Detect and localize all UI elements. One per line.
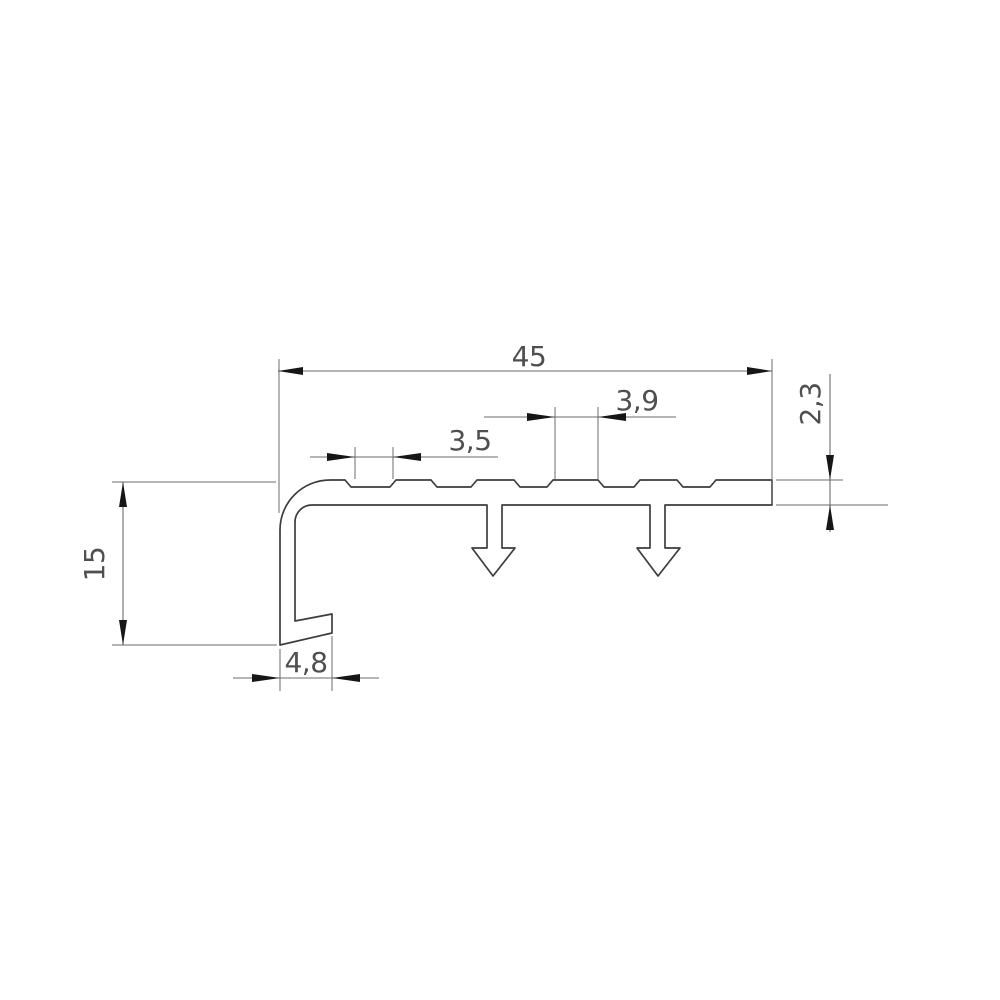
- drawing-canvas: 45 2,3 3,9 3,5: [0, 0, 1000, 1000]
- dimension-leg-height: 15: [78, 482, 277, 645]
- arrowhead-up-icon: [119, 482, 127, 507]
- dimension-label-groove-width: 3,5: [448, 424, 491, 457]
- dimension-rib-width: 3,9: [484, 384, 676, 479]
- dimension-label-rib-width: 3,9: [615, 384, 658, 417]
- arrowhead-up-icon: [826, 505, 834, 530]
- profile-outline: [280, 480, 772, 645]
- dimension-groove-width: 3,5: [310, 424, 498, 479]
- arrowhead-left-icon: [393, 453, 421, 461]
- dimension-bar-thickness: 2,3: [776, 374, 888, 532]
- arrowhead-right-icon: [252, 674, 280, 682]
- arrowhead-down-icon: [119, 620, 127, 645]
- dimension-label-bar-thickness: 2,3: [794, 382, 827, 425]
- dimension-foot-width: 4,8: [233, 636, 379, 691]
- dimension-label-foot-width: 4,8: [284, 646, 327, 679]
- dimension-label-total-width: 45: [512, 340, 547, 373]
- arrowhead-right-icon: [327, 453, 355, 461]
- arrowhead-right-icon: [747, 367, 772, 375]
- profile-technical-drawing: 45 2,3 3,9 3,5: [0, 0, 1000, 1000]
- arrowhead-right-icon: [527, 413, 555, 421]
- arrowhead-left-icon: [332, 674, 360, 682]
- arrowhead-left-icon: [278, 367, 303, 375]
- arrowhead-down-icon: [826, 455, 834, 480]
- profile-outline-group: [280, 480, 772, 645]
- dimension-label-leg-height: 15: [78, 547, 111, 582]
